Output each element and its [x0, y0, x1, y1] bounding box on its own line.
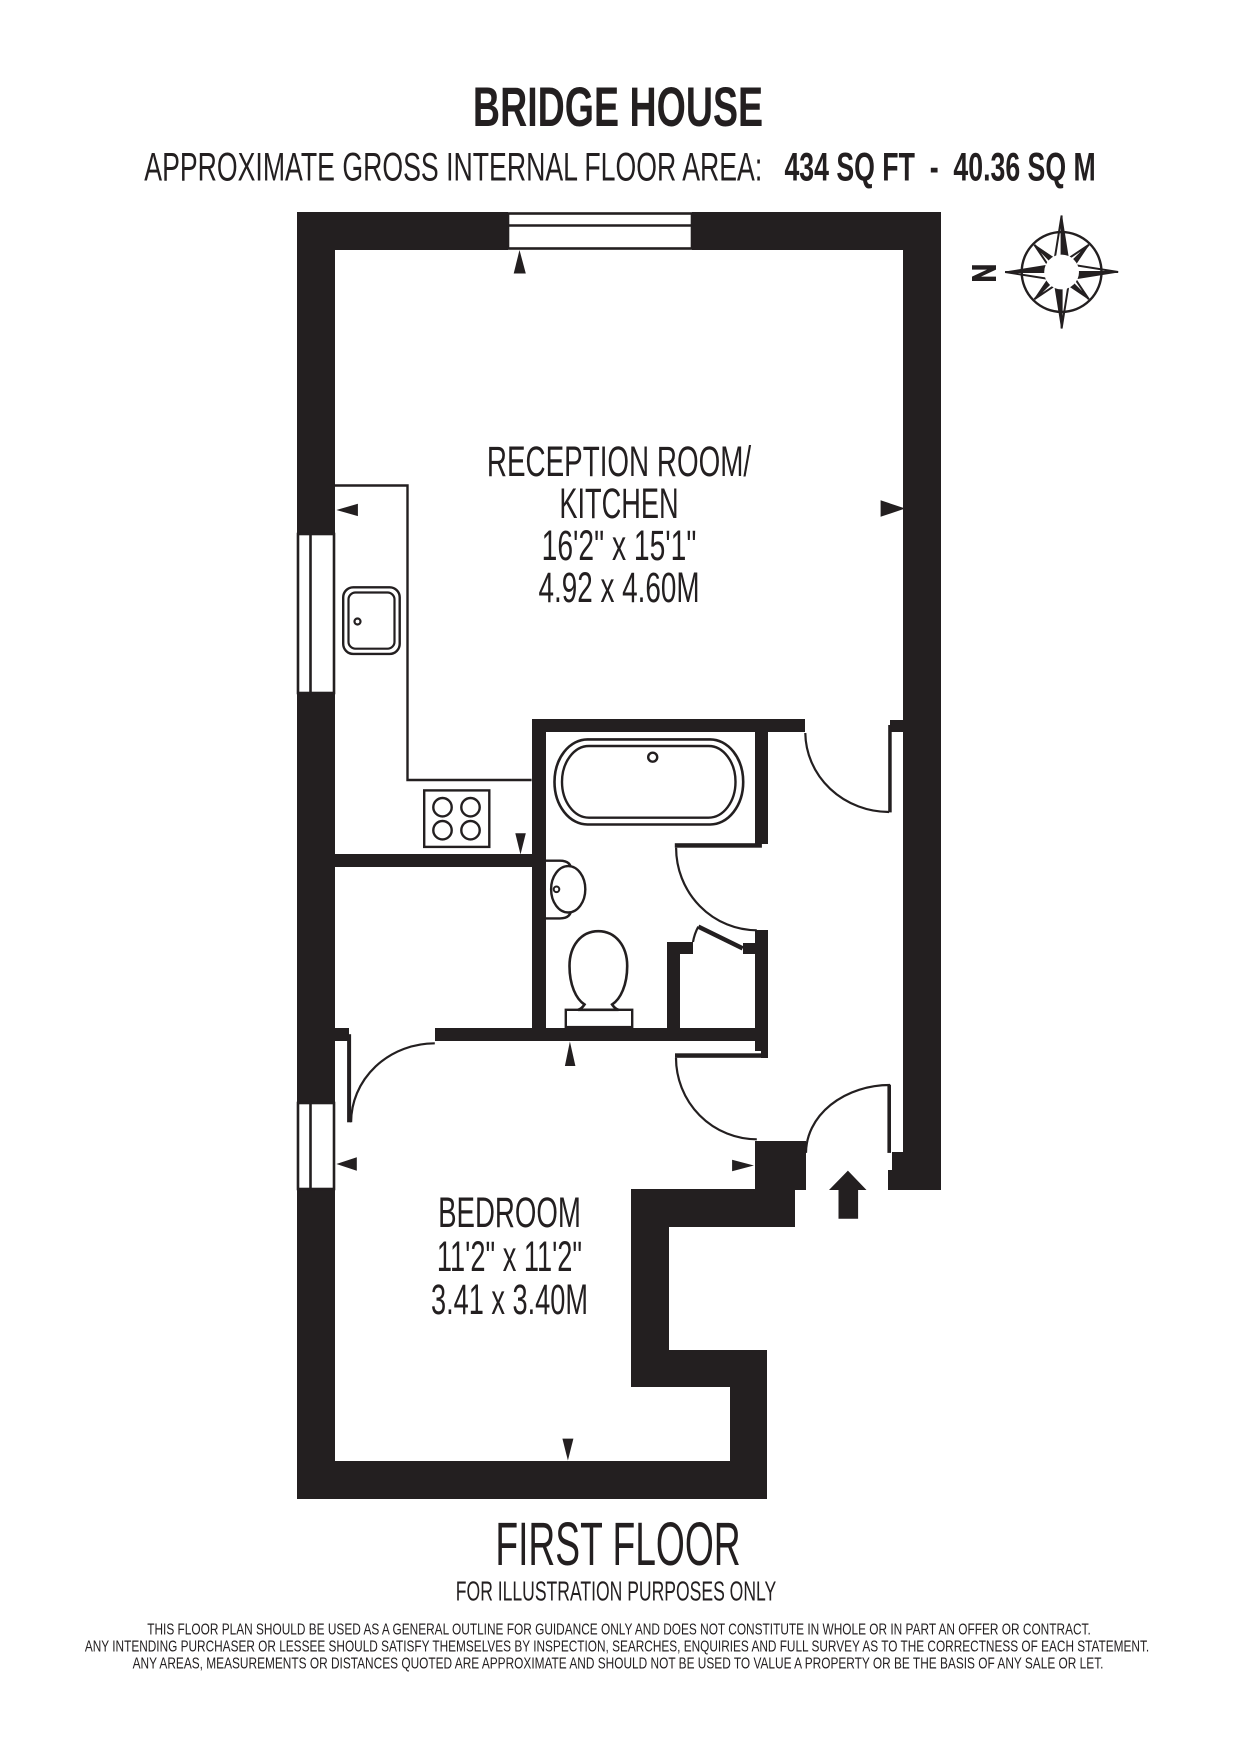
svg-text:3.41 x 3.40M: 3.41 x 3.40M [431, 1275, 588, 1324]
svg-text:FIRST FLOOR: FIRST FLOOR [495, 1509, 740, 1578]
svg-text:FOR ILLUSTRATION PURPOSES ONLY: FOR ILLUSTRATION PURPOSES ONLY [456, 1576, 776, 1607]
svg-text:4.92 x 4.60M: 4.92 x 4.60M [538, 563, 699, 612]
svg-text:BEDROOM: BEDROOM [438, 1188, 581, 1237]
svg-text:BRIDGE HOUSE: BRIDGE HOUSE [473, 76, 763, 138]
svg-text:11'2" x 11'2": 11'2" x 11'2" [437, 1231, 582, 1280]
svg-text:ANY AREAS, MEASUREMENTS OR DIS: ANY AREAS, MEASUREMENTS OR DISTANCES QUO… [133, 1654, 1104, 1672]
svg-text:THIS FLOOR PLAN SHOULD BE USED: THIS FLOOR PLAN SHOULD BE USED AS A GENE… [147, 1620, 1091, 1638]
svg-text:APPROXIMATE GROSS INTERNAL FLO: APPROXIMATE GROSS INTERNAL FLOOR AREA: 4… [144, 145, 1095, 190]
svg-text:ANY INTENDING PURCHASER OR LES: ANY INTENDING PURCHASER OR LESSEE SHOULD… [85, 1637, 1149, 1655]
